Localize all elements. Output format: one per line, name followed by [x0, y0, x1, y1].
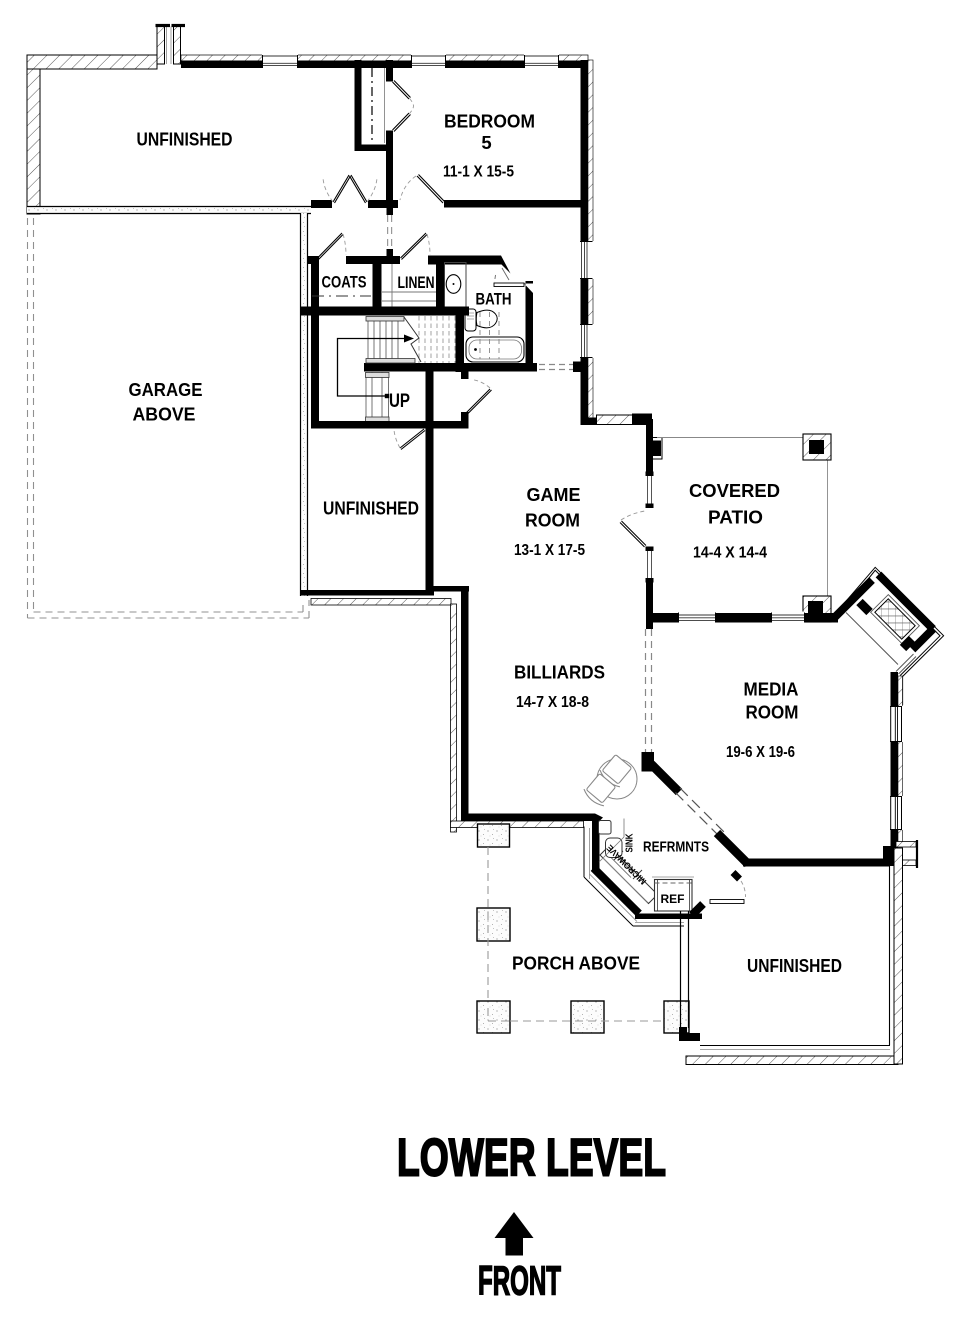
svg-text:LINEN: LINEN	[398, 273, 435, 292]
svg-text:ROOM: ROOM	[525, 510, 580, 531]
svg-text:BATH: BATH	[476, 290, 512, 309]
svg-text:MEDIA: MEDIA	[744, 679, 799, 700]
svg-text:14-4 X 14-4: 14-4 X 14-4	[693, 545, 767, 562]
svg-text:BILLIARDS: BILLIARDS	[514, 662, 605, 683]
svg-text:REFRMNTS: REFRMNTS	[643, 840, 709, 856]
svg-text:LOWER LEVEL: LOWER LEVEL	[397, 1129, 666, 1188]
svg-text:BEDROOM: BEDROOM	[444, 111, 535, 132]
svg-text:14-7 X 18-8: 14-7 X 18-8	[516, 694, 589, 711]
svg-text:19-6 X 19-6: 19-6 X 19-6	[726, 744, 795, 761]
svg-text:UNFINISHED: UNFINISHED	[747, 955, 842, 976]
svg-text:SINK: SINK	[625, 833, 636, 853]
svg-text:GARAGE: GARAGE	[129, 379, 203, 400]
svg-text:ABOVE: ABOVE	[133, 404, 196, 425]
svg-text:UNFINISHED: UNFINISHED	[137, 129, 233, 150]
svg-text:ROOM: ROOM	[746, 702, 799, 723]
svg-text:11-1 X 15-5: 11-1 X 15-5	[443, 164, 514, 181]
svg-text:GAME: GAME	[527, 484, 581, 505]
svg-text:FRONT: FRONT	[478, 1258, 561, 1304]
svg-text:13-1 X 17-5: 13-1 X 17-5	[514, 542, 585, 559]
svg-text:REF: REF	[661, 892, 685, 906]
svg-text:5: 5	[481, 132, 491, 153]
svg-text:UNFINISHED: UNFINISHED	[323, 498, 419, 519]
svg-text:PATIO: PATIO	[708, 507, 763, 528]
svg-text:UP: UP	[389, 390, 410, 412]
svg-text:COVERED: COVERED	[689, 480, 780, 501]
svg-text:COATS: COATS	[322, 273, 367, 292]
svg-text:PORCH ABOVE: PORCH ABOVE	[512, 953, 640, 974]
